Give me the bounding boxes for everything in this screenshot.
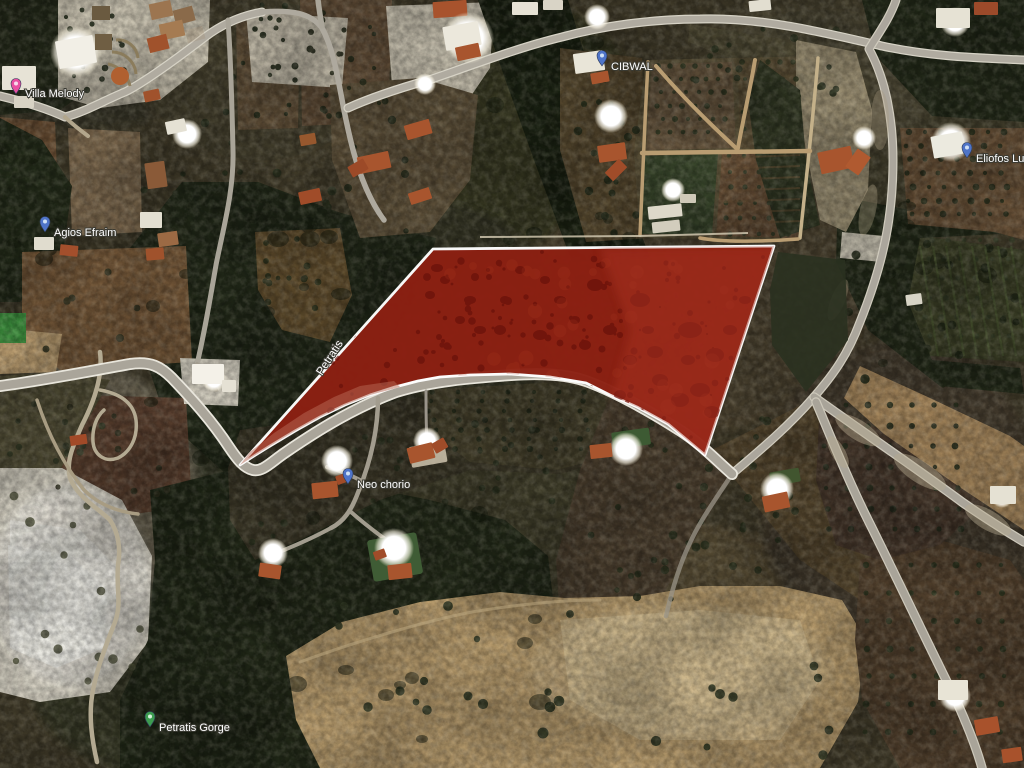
svg-text:Villa Melody: Villa Melody bbox=[25, 88, 85, 100]
svg-text:CIBWAL: CIBWAL bbox=[611, 61, 653, 73]
svg-text:Eliofos Lu: Eliofos Lu bbox=[976, 153, 1024, 165]
svg-text:Neo chorio: Neo chorio bbox=[357, 479, 410, 491]
svg-text:Agios Efraim: Agios Efraim bbox=[54, 227, 116, 239]
svg-text:Petratis Gorge: Petratis Gorge bbox=[159, 722, 230, 734]
